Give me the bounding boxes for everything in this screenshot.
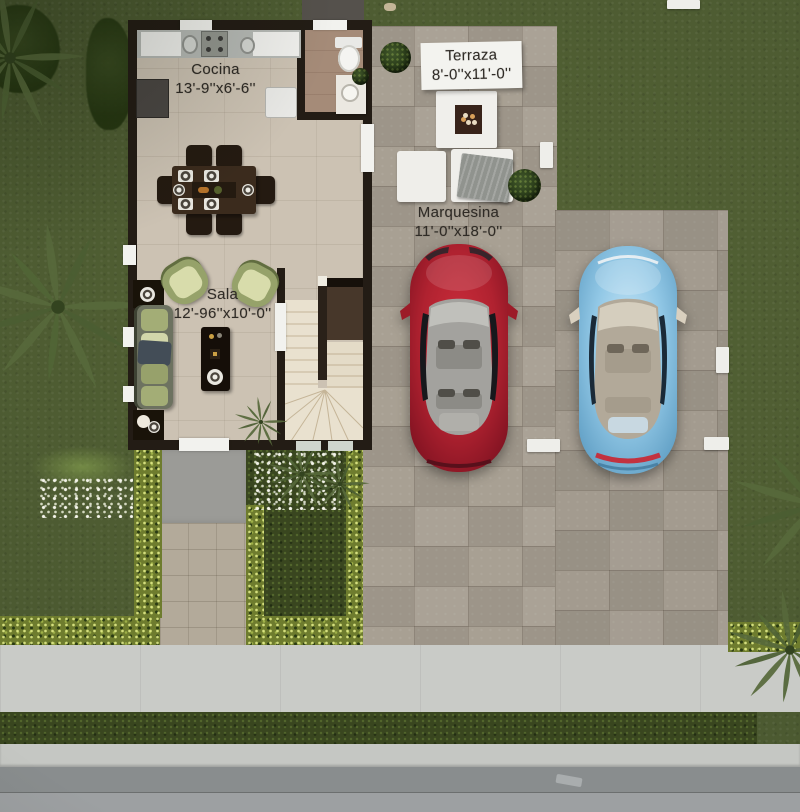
terrace-ottoman-left <box>397 151 446 202</box>
place-setting <box>204 198 219 210</box>
terraza-label-plate: Terraza 8'-0''x11'-0'' <box>421 41 523 90</box>
marquesina-dimensions: 11'-0''x18'-0'' <box>390 222 527 241</box>
bathroom-plant <box>352 68 369 85</box>
place-setting <box>242 184 254 196</box>
terrace-bush-top <box>380 42 411 73</box>
sofa-cushion <box>141 386 168 406</box>
food-dish <box>198 187 209 193</box>
marquesina-name: Marquesina <box>390 203 527 222</box>
fire-pit-stones <box>463 113 468 118</box>
cocina-name: Cocina <box>148 60 283 79</box>
dining-chair <box>186 211 212 235</box>
place-setting <box>204 170 219 182</box>
palm-tree-top-left <box>0 0 100 148</box>
side-table-decor <box>148 421 160 433</box>
kitchen-sink <box>182 35 198 54</box>
sala-label: Sala 12'-96''x10'-0'' <box>145 285 300 323</box>
kitchen-sink-2 <box>240 37 255 54</box>
dining-chair <box>216 211 242 235</box>
sidewalk <box>0 645 800 712</box>
cooktop-burners <box>206 36 211 41</box>
white-flowers-left <box>38 476 133 518</box>
place-setting <box>173 184 185 196</box>
curb <box>0 744 800 767</box>
palm-tree-left <box>0 217 148 397</box>
entry-porch <box>157 448 249 524</box>
vanity-basin <box>341 84 359 102</box>
coffee-table-decor <box>207 369 223 385</box>
red-car <box>397 241 521 475</box>
cooktop <box>201 31 228 57</box>
window-bottom-1 <box>296 441 321 451</box>
food-dish <box>214 186 222 194</box>
place-setting <box>178 170 193 182</box>
sala-plant <box>233 394 289 450</box>
sala-name: Sala <box>145 285 300 304</box>
coffee-table-decor <box>210 349 220 359</box>
terrace-door <box>361 124 374 172</box>
pebble <box>384 3 396 11</box>
window-top-1 <box>180 20 212 30</box>
window-sill-left-1 <box>123 245 136 265</box>
window-top-2 <box>313 20 347 30</box>
hedgerow-middle <box>246 616 363 646</box>
coffee-table-decor <box>209 334 214 339</box>
hedgerow-left <box>0 616 160 646</box>
kitchen-counter-white-left <box>141 32 181 56</box>
terrace-edge-marker <box>540 142 553 168</box>
wall-marker-top-right <box>667 0 700 9</box>
entry-walkway <box>160 523 246 645</box>
verge-grass-strip <box>0 712 757 744</box>
fire-pit <box>455 105 482 134</box>
slab-edge-marker <box>716 347 729 373</box>
fern-in-bed-2 <box>300 444 380 524</box>
window-bottom-2 <box>328 441 353 451</box>
palm-tree-right-low <box>700 560 800 740</box>
cocina-label: Cocina 13'-9''x6'-6'' <box>148 60 283 98</box>
cocina-dimensions: 13'-9''x6'-6'' <box>148 79 283 98</box>
ottoman-throw-blanket <box>457 153 514 203</box>
marquesina-label: Marquesina 11'-0''x18'-0'' <box>390 203 527 241</box>
terraza-name: Terraza <box>421 45 522 66</box>
terrace-bush-right <box>508 169 541 202</box>
kitchen-counter-white-right <box>253 32 299 56</box>
front-door-threshold <box>179 438 229 451</box>
parking-marker-middle <box>527 439 560 452</box>
place-setting <box>178 198 193 210</box>
blue-car <box>566 243 690 477</box>
street-lower-band <box>0 792 800 812</box>
floor-plan-scene: Cocina 13'-9''x6'-6'' Terraza 8'-0''x11'… <box>0 0 800 812</box>
sala-dimensions: 12'-96''x10'-0'' <box>145 304 300 323</box>
sofa-throw <box>137 340 172 366</box>
terraza-dimensions: 8'-0''x11'-0'' <box>421 64 522 85</box>
hedge-left-of-walkway <box>134 448 162 618</box>
sofa-cushion <box>141 364 168 384</box>
hedge-right-of-walkway <box>246 505 264 618</box>
